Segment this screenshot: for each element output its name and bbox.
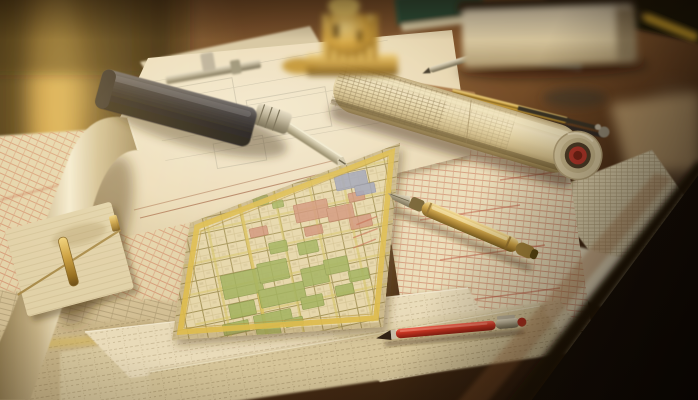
dark-instrument <box>543 88 607 108</box>
desk-photo <box>0 0 698 400</box>
book-stack <box>456 0 649 81</box>
photo-canvas <box>0 0 698 400</box>
